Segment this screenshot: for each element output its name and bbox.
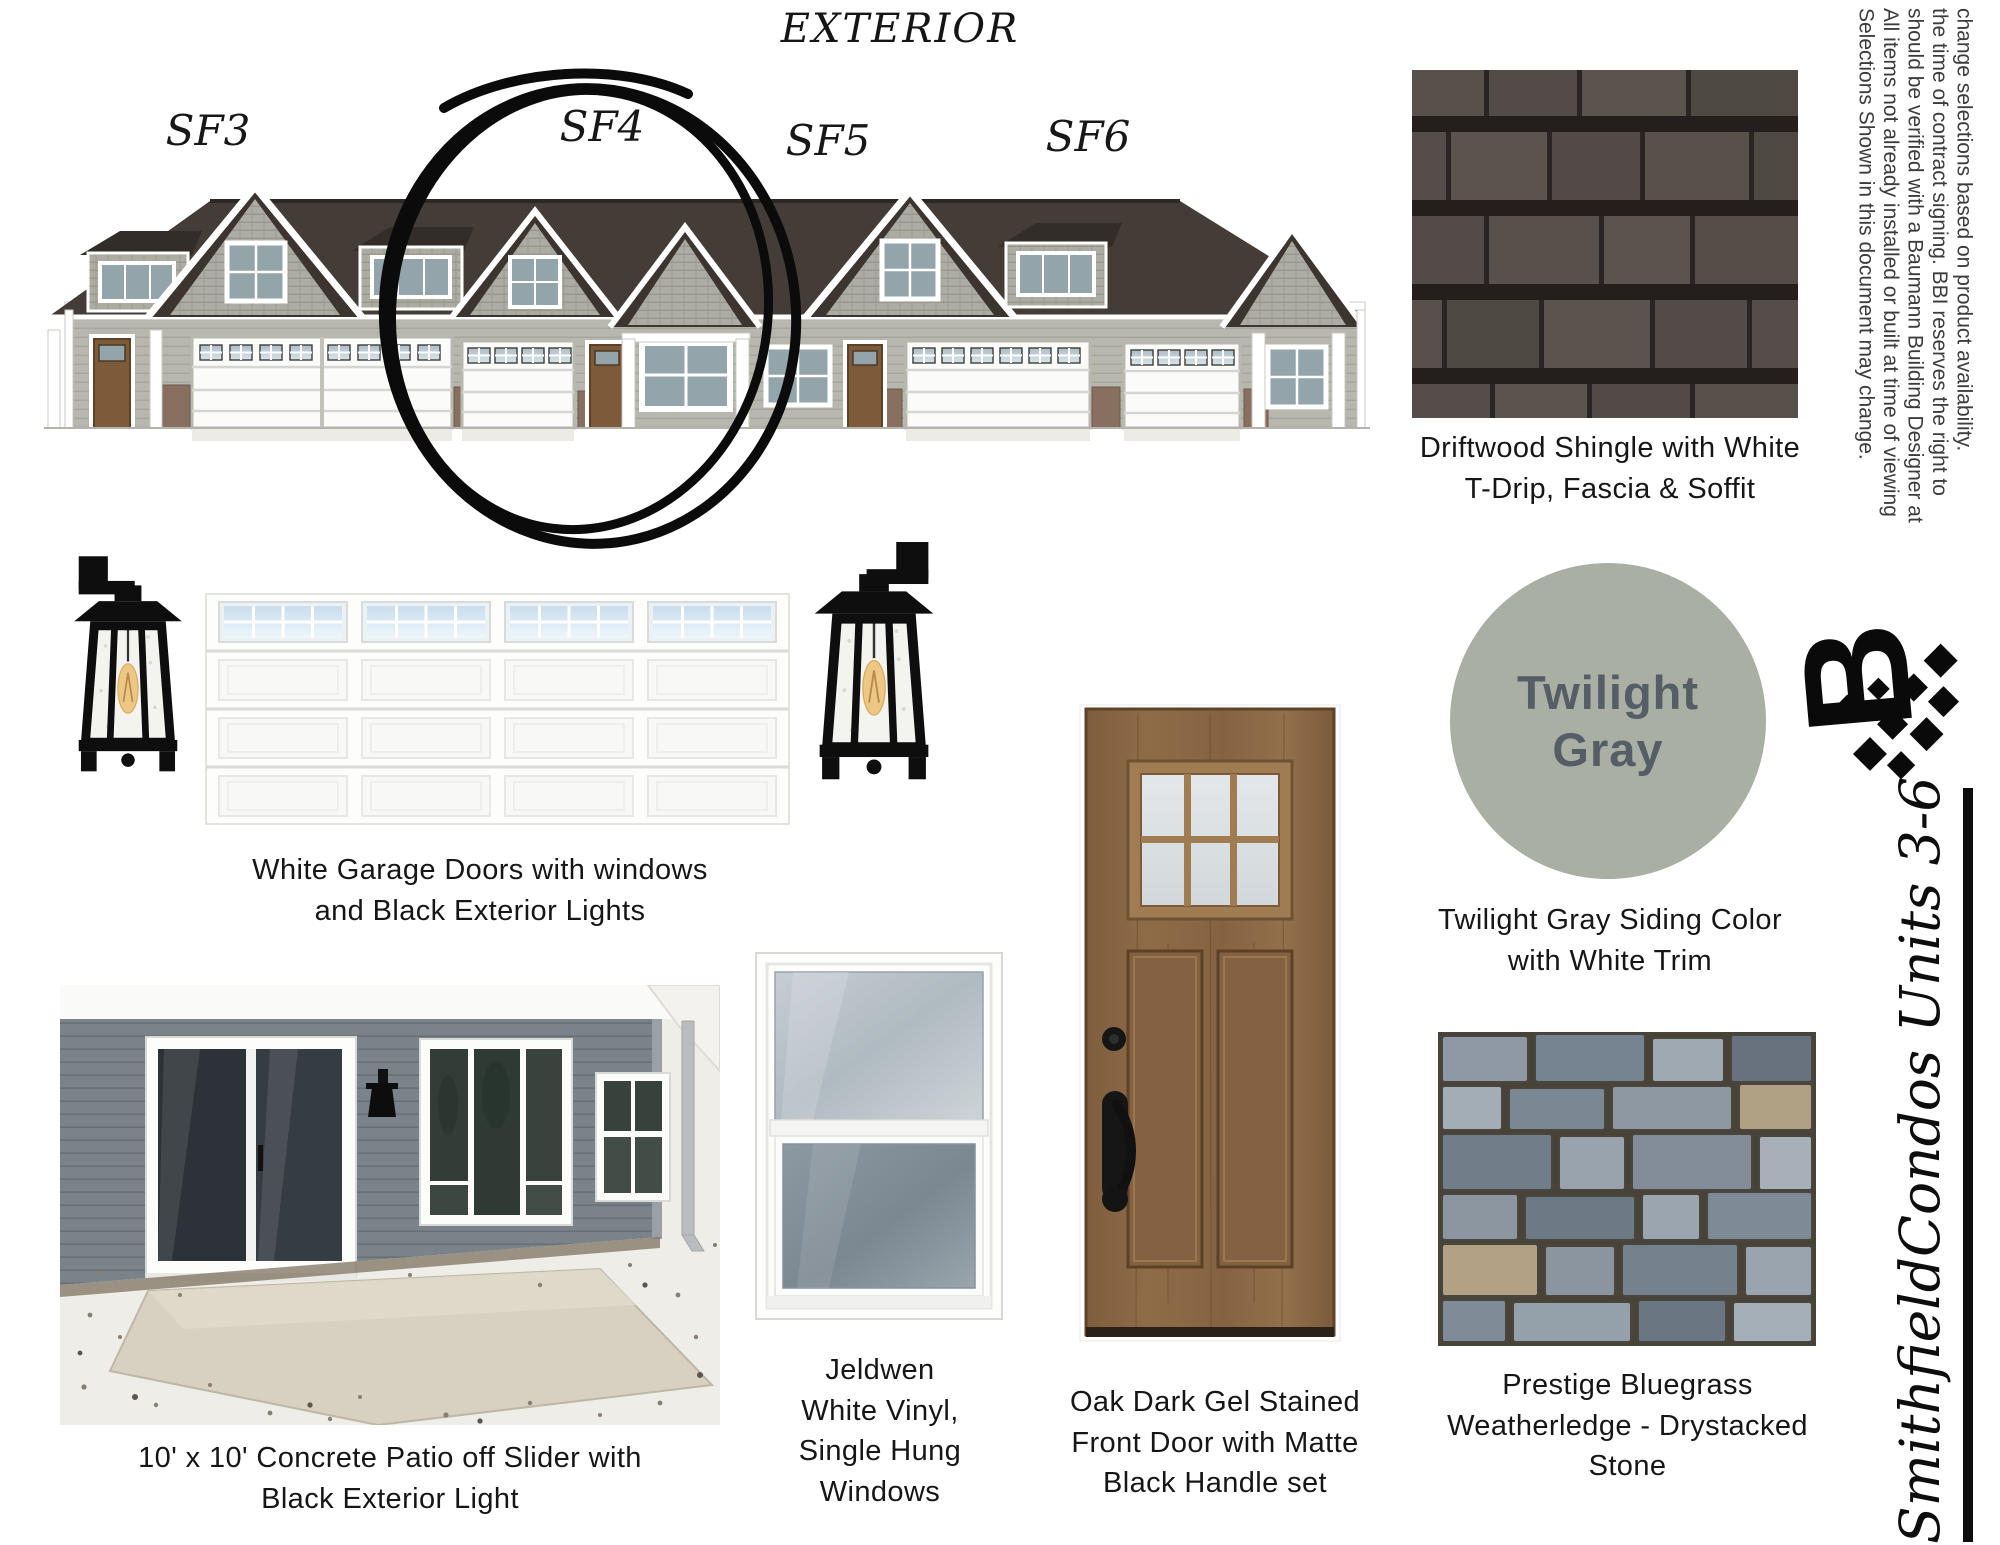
disclaimer-line: All items not already installed or built…	[1878, 8, 1903, 588]
patio-photo	[60, 985, 720, 1425]
disclaimer-line: should be verified with a Baumann Buildi…	[1902, 8, 1927, 588]
selection-circle-annotation	[352, 60, 824, 562]
svg-text:B: B	[1795, 617, 1945, 740]
patio-caption: 10' x 10' Concrete Patio off Slider with…	[40, 1438, 740, 1519]
stone-caption: Prestige Bluegrass Weatherledge - Drysta…	[1420, 1365, 1835, 1487]
window-product-image	[753, 950, 1005, 1322]
front-door-image	[1078, 703, 1342, 1343]
design-board: EXTERIOR SF3 SF4 SF5 SF6	[0, 0, 2000, 1545]
dormer	[998, 223, 1122, 307]
project-title-vertical: SmithfieldCondos Units 3-6	[1876, 792, 1964, 1544]
wall-lantern-left-icon	[72, 556, 184, 794]
stone-swatch-image	[1438, 1032, 1816, 1346]
disclaimer-text: Selections Shown in this document may ch…	[1853, 8, 1976, 588]
garage-door-image	[205, 593, 790, 825]
shingle-caption: Driftwood Shingle with White T-Drip, Fas…	[1390, 428, 1830, 509]
baumann-logo: B	[1795, 580, 2000, 805]
window-caption: Jeldwen White Vinyl, Single Hung Windows	[745, 1350, 1015, 1512]
title-underline-bar	[1963, 788, 1973, 1542]
siding-caption: Twilight Gray Siding Color with White Tr…	[1410, 900, 1810, 981]
door-caption: Oak Dark Gel Stained Front Door with Mat…	[1040, 1382, 1390, 1504]
siding-swatch-circle: Twilight Gray	[1450, 563, 1766, 879]
disclaimer-line: Selections Shown in this document may ch…	[1853, 8, 1878, 588]
disclaimer-line: the time of contract signing. BBI reserv…	[1927, 8, 1952, 588]
page-title: EXTERIOR	[700, 6, 1100, 52]
disclaimer-line: change selections based on product avail…	[1951, 8, 1976, 588]
siding-swatch-label: Gray	[1552, 721, 1663, 778]
garage-caption: White Garage Doors with windows and Blac…	[130, 850, 830, 931]
wall-lantern-right-icon	[800, 542, 948, 804]
siding-swatch-label: Twilight	[1517, 664, 1699, 721]
shingle-swatch-image	[1412, 70, 1798, 418]
